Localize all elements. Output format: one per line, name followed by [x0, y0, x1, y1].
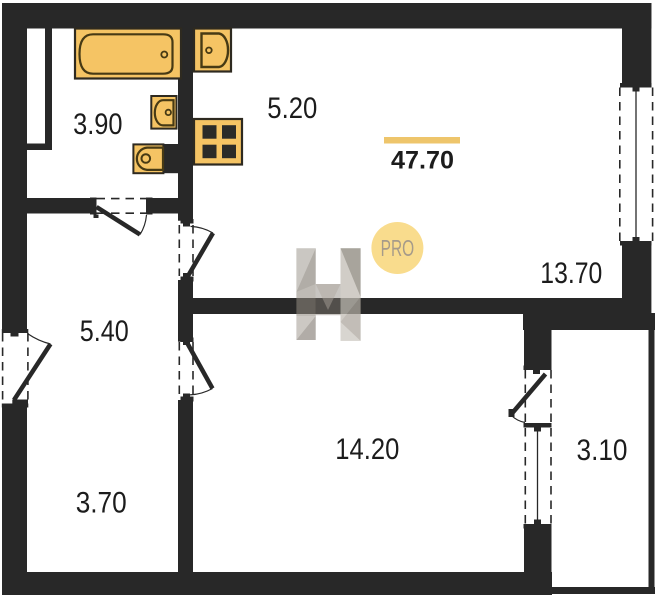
svg-text:5.40: 5.40 — [80, 315, 129, 348]
svg-text:5.20: 5.20 — [267, 92, 317, 125]
svg-text:3.10: 3.10 — [577, 434, 628, 467]
svg-text:3.70: 3.70 — [76, 487, 127, 520]
svg-text:PRO: PRO — [381, 235, 415, 261]
svg-text:3.90: 3.90 — [73, 108, 122, 141]
svg-text:13.70: 13.70 — [540, 257, 602, 290]
svg-text:47.70: 47.70 — [391, 147, 454, 175]
svg-text:14.20: 14.20 — [335, 433, 399, 466]
